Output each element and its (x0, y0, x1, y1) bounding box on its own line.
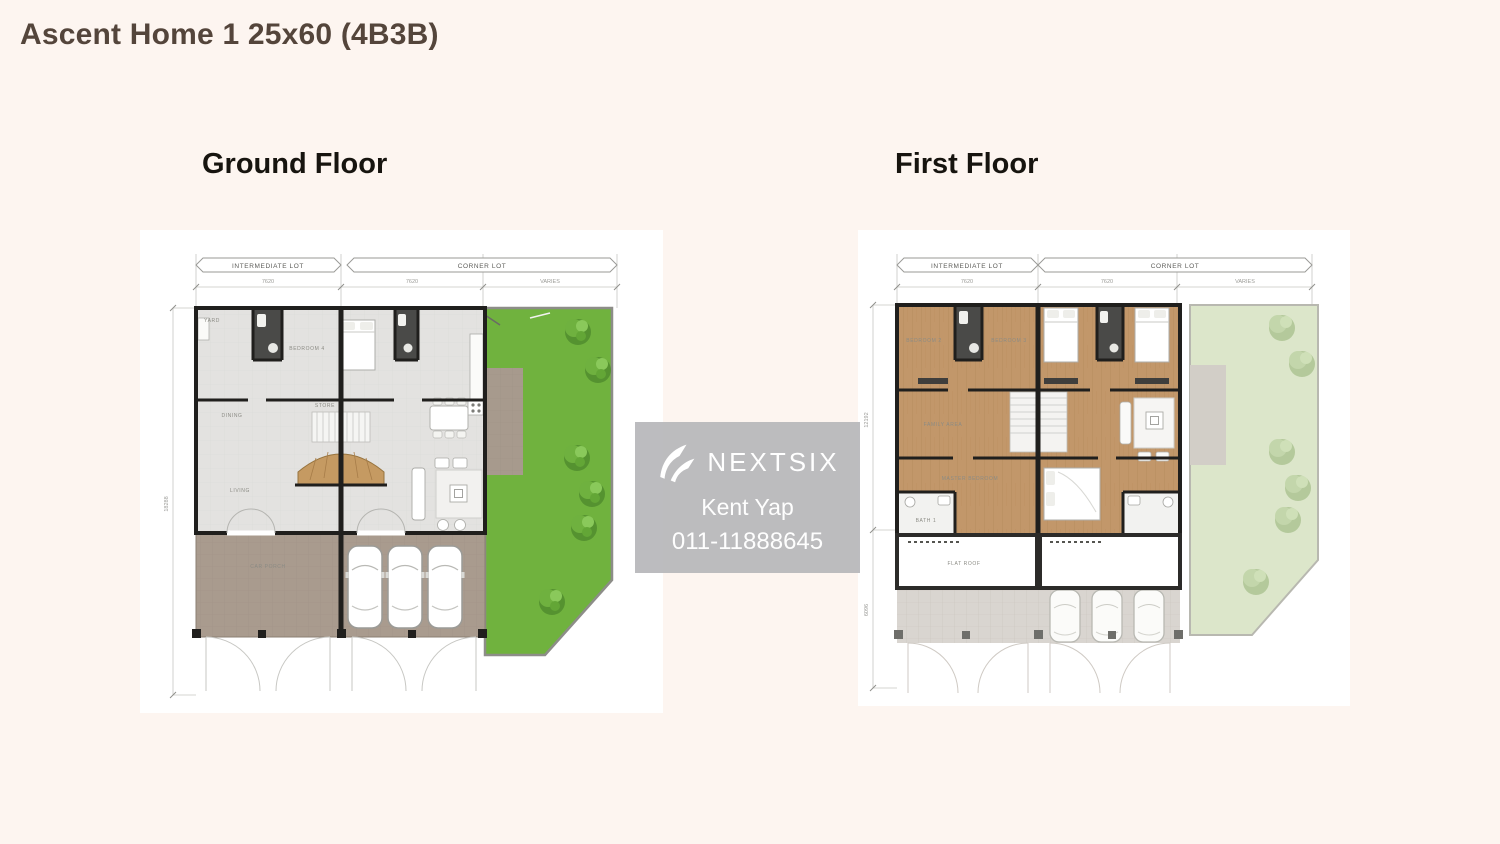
ground-dim-2: 7620 (406, 279, 418, 285)
first-intermediate-lot-label: INTERMEDIATE LOT (931, 263, 1003, 270)
room-label-bedroom2: BEDROOM 2 (906, 338, 941, 344)
room-label-flatroof: FLAT ROOF (948, 561, 981, 567)
first-flat-roofs (897, 535, 1180, 588)
watermark-agent-phone: 011-11888645 (672, 528, 823, 556)
tree-icon (539, 589, 565, 615)
faded-car-icon (1092, 590, 1122, 642)
room-label-dining: DINING (221, 413, 242, 419)
first-depth-dim-lower: 6096 (864, 604, 870, 616)
first-depth-dim-upper: 12192 (864, 412, 870, 427)
faded-tree-icon (1269, 439, 1295, 465)
first-garden-faded (1190, 305, 1318, 635)
first-dim-varies: VARIES (1235, 279, 1255, 285)
faded-tree-icon (1289, 351, 1315, 377)
ground-dim-varies: VARIES (540, 279, 560, 285)
room-label-yard: YARD (204, 318, 220, 324)
ground-floor-plan: INTERMEDIATE LOT CORNER LOT 7620 7620 VA… (140, 230, 663, 713)
room-label-living: LIVING (230, 488, 250, 494)
watermark-agent-name: Kent Yap (701, 494, 794, 521)
ground-lot-banners: INTERMEDIATE LOT CORNER LOT (196, 258, 617, 272)
first-corner-lot-label: CORNER LOT (1151, 263, 1200, 270)
faded-tree-icon (1269, 315, 1295, 341)
faded-tree-icon (1243, 569, 1269, 595)
ground-dim-1: 7620 (262, 279, 274, 285)
ground-corner-lot-label: CORNER LOT (458, 263, 507, 270)
faded-car-icon (1134, 590, 1164, 642)
room-label-bedroom4: BEDROOM 4 (289, 346, 324, 352)
tree-icon (585, 357, 611, 383)
first-floor-panel: INTERMEDIATE LOT CORNER LOT 7620 7620 VA… (858, 230, 1350, 706)
room-label-family: FAMILY AREA (924, 422, 963, 428)
tree-icon (565, 319, 591, 345)
car-icon (346, 546, 385, 628)
first-floor-heading: First Floor (895, 148, 1038, 181)
nextsix-logo-icon (655, 442, 697, 484)
room-label-master: MASTER BEDROOM (942, 476, 998, 482)
tree-icon (579, 481, 605, 507)
faded-car-icon (1050, 590, 1080, 642)
ground-floor-heading: Ground Floor (202, 148, 387, 181)
room-label-bedroom3: BEDROOM 3 (991, 338, 1026, 344)
car-icon (426, 546, 465, 628)
room-label-carporch: CAR PORCH (250, 564, 285, 570)
ground-floor-panel: INTERMEDIATE LOT CORNER LOT 7620 7620 VA… (140, 230, 663, 713)
ground-depth-dim: 18288 (164, 496, 170, 511)
room-label-bath1: BATH 1 (916, 518, 937, 524)
ground-garden (485, 308, 612, 655)
first-dim-2: 7620 (1101, 279, 1113, 285)
room-label-store: STORE (315, 403, 335, 409)
ground-intermediate-lot-label: INTERMEDIATE LOT (232, 263, 304, 270)
car-icon (386, 546, 425, 628)
watermark-brand-row: NEXTSIX (655, 442, 839, 484)
faded-tree-icon (1275, 507, 1301, 533)
first-floor-plan: INTERMEDIATE LOT CORNER LOT 7620 7620 VA… (858, 230, 1350, 706)
agent-watermark: NEXTSIX Kent Yap 011-11888645 (635, 422, 860, 573)
first-lot-banners: INTERMEDIATE LOT CORNER LOT (897, 258, 1312, 272)
page-title: Ascent Home 1 25x60 (4B3B) (20, 18, 439, 52)
ground-cars (346, 546, 465, 628)
tree-icon (564, 445, 590, 471)
watermark-brand-name: NEXTSIX (707, 447, 839, 478)
floorplan-page: Ascent Home 1 25x60 (4B3B) Ground Floor … (0, 0, 1500, 844)
faded-tree-icon (1285, 475, 1311, 501)
first-faded-porch (894, 588, 1183, 693)
first-dim-1: 7620 (961, 279, 973, 285)
tree-icon (571, 515, 597, 541)
